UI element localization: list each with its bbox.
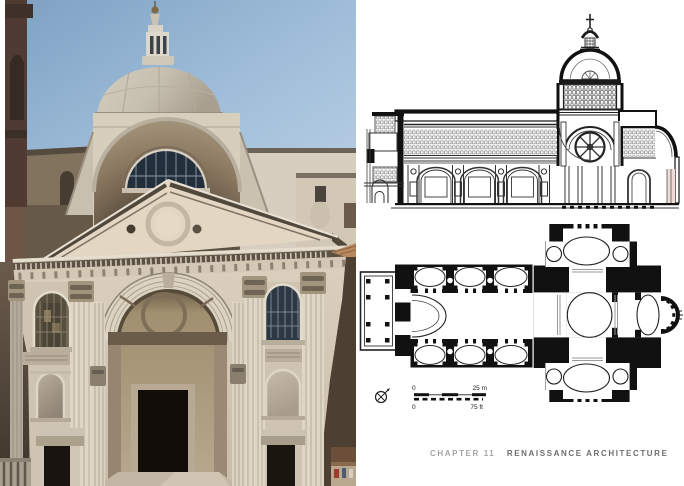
svg-text:0: 0 bbox=[412, 404, 416, 411]
svg-text:75 ft: 75 ft bbox=[470, 404, 483, 411]
svg-text:0: 0 bbox=[412, 385, 416, 392]
svg-text:25 m: 25 m bbox=[473, 385, 487, 392]
